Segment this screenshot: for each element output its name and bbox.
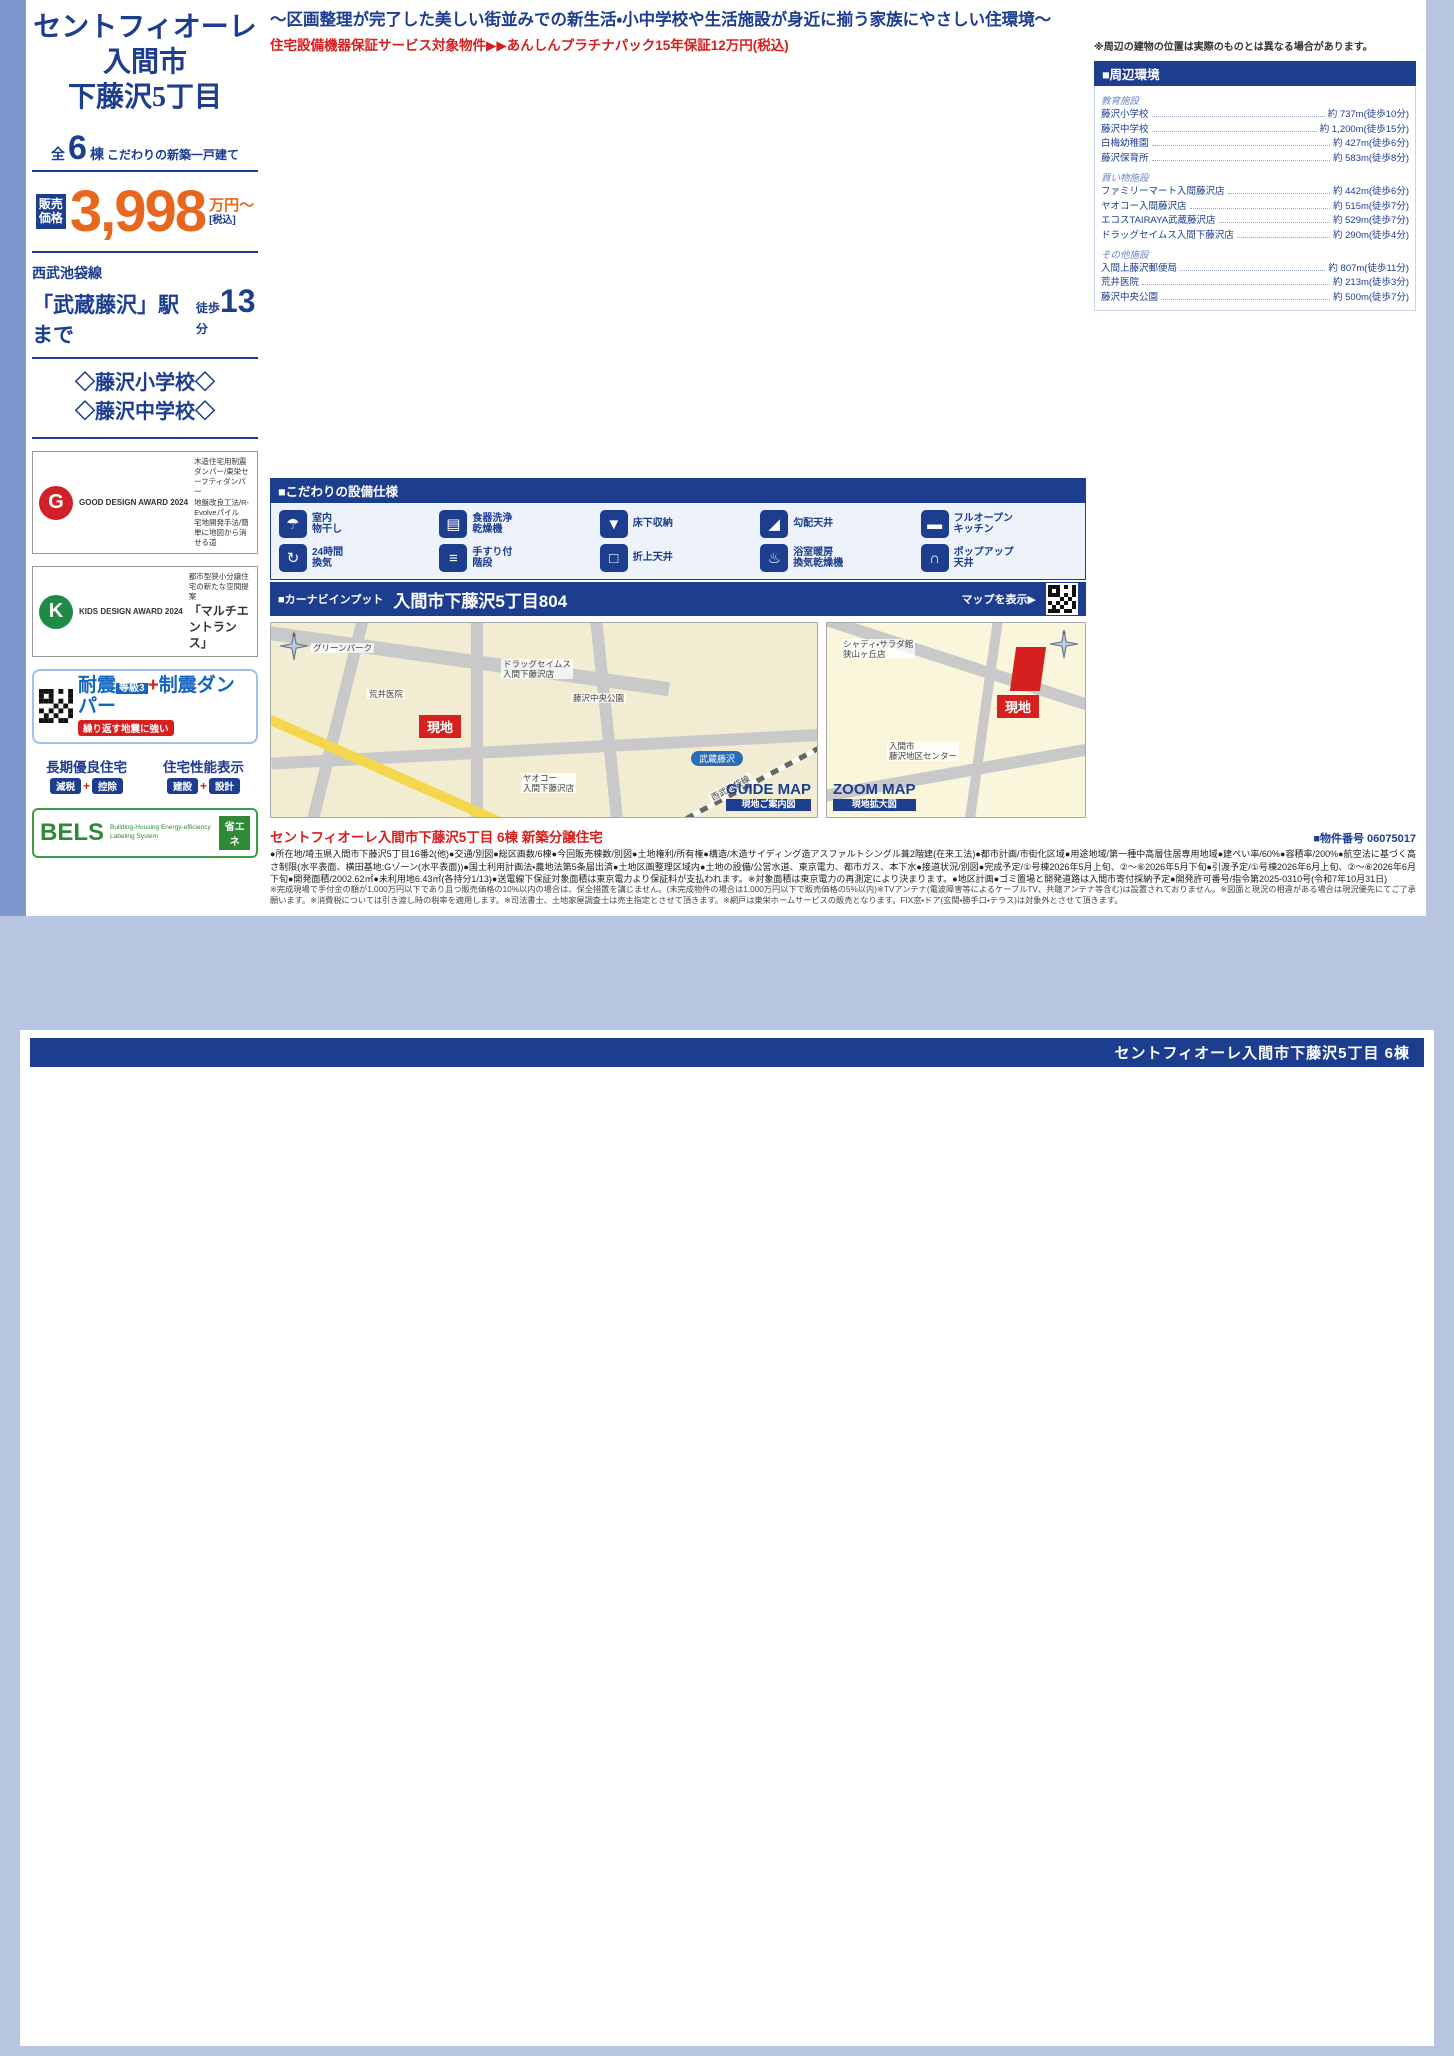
price-label: 販売価格: [36, 194, 66, 230]
equipment-item: □折上天井: [600, 544, 756, 572]
page-1: セントフィオーレ 入間市 下藤沢5丁目 全6 棟 こだわりの新築一戸建て 販売価…: [26, 0, 1426, 916]
equipment-item: ▼床下収納: [600, 510, 756, 538]
outline-body: ●所在地/埼玉県入間市下藤沢5丁目16番2(他)●交通/別図●総区画数/6棟●今…: [270, 848, 1416, 886]
facility-distance: 約 807m(徒歩11分): [1328, 262, 1409, 277]
price-unit: 万円〜[税込]: [209, 197, 254, 227]
property-title: セントフィオーレ 入間市 下藤沢5丁目: [32, 10, 258, 115]
zoom-map-badge: ZOOM MAP現地拡大図: [833, 782, 916, 811]
facility-distance: 約 442m(徒歩6分): [1333, 185, 1409, 200]
facility-distance: 約 1,200m(徒歩15分): [1320, 123, 1409, 138]
property-outline: セントフィオーレ入間市下藤沢5丁目 6棟 新築分譲住宅 ■物件番号 060750…: [270, 826, 1416, 886]
surroundings-item: エコスTAIRAYA武蔵藤沢店約 529m(徒歩7分): [1101, 214, 1409, 229]
site-parcel-shape: [1010, 647, 1046, 691]
siteplan-note: ※周辺の建物の位置は実際のものとは異なる場合があります。: [1094, 38, 1416, 53]
sidebar: セントフィオーレ 入間市 下藤沢5丁目 全6 棟 こだわりの新築一戸建て 販売価…: [32, 10, 258, 858]
catchphrase: 〜区画整理が完了した美しい街並みでの新生活・小中学校や生活施設が身近に揃う家族に…: [270, 6, 1416, 30]
equipment-label: ポップアップ 天井: [954, 547, 1014, 570]
poi-label: ドラッグセイムス 入間下藤沢店: [501, 659, 573, 679]
zoom-map: シャディ・サラダ館 狭山ヶ丘店 入間市 藤沢地区センター 現地 ZOOM MAP…: [826, 622, 1086, 818]
equipment-item: ▬フルオープン キッチン: [921, 510, 1077, 538]
equipment-item: ◢勾配天井: [760, 510, 916, 538]
facility-name: 藤沢保育所: [1101, 152, 1149, 167]
facility-name: 藤沢小学校: [1101, 108, 1149, 123]
total-units: 全6 棟 こだわりの新築一戸建て: [32, 129, 258, 172]
surroundings-item: 藤沢小学校約 737m(徒歩10分): [1101, 108, 1409, 123]
site-marker: 現地: [419, 715, 461, 738]
dotted-leader: [1190, 208, 1330, 209]
bels-logo: BELS: [40, 821, 104, 845]
disclaimer: ※完成現場で手付金の額が1,000万円以下であり且つ販売価格の10%以内の場合は…: [270, 884, 1416, 906]
equipment-label: 24時間 換気: [312, 547, 343, 570]
dotted-leader: [1161, 299, 1330, 300]
compass-icon: N: [1049, 629, 1079, 659]
equipment-item: ▤食器洗浄 乾燥機: [439, 510, 595, 538]
station-access: 西武池袋線 「武蔵藤沢」駅まで 徒歩13分: [32, 263, 258, 359]
carnav-map-button: マップを表示▶: [962, 591, 1036, 607]
surroundings-section: ■周辺環境 教育施設藤沢小学校約 737m(徒歩10分)藤沢中学校約 1,200…: [1094, 61, 1416, 311]
maps-row: 武蔵藤沢 西武池袋線 現地 ドラッグセイムス 入間下藤沢店 荒井医院 藤沢中央公…: [270, 622, 1086, 818]
dotted-leader: [1219, 222, 1330, 223]
price-value: 3,998: [70, 178, 205, 245]
bels-badge: BELS Building-Housing Energy-efficiency …: [32, 808, 258, 858]
school-district: ◇藤沢小学校◇ ◇藤沢中学校◇: [32, 369, 258, 439]
equipment-item: ↻24時間 換気: [279, 544, 435, 572]
surroundings-item: 藤沢中学校約 1,200m(徒歩15分): [1101, 123, 1409, 138]
page1-right-column: ※周辺の建物の位置は実際のものとは異なる場合があります。 ■周辺環境 教育施設藤…: [1094, 34, 1416, 311]
surroundings-group-label: 教育施設: [1101, 93, 1409, 107]
svg-text:N: N: [292, 632, 295, 637]
facility-distance: 約 500m(徒歩7分): [1333, 291, 1409, 306]
good-design-award-badge: G GOOD DESIGN AWARD 2024 木造住宅用制震ダンパー/東栄セ…: [32, 451, 258, 554]
surroundings-item: 入間上藤沢郵便局約 807m(徒歩11分): [1101, 262, 1409, 277]
facility-distance: 約 213m(徒歩3分): [1333, 276, 1409, 291]
sloped-ceiling-icon: ◢: [760, 510, 788, 538]
surroundings-group-label: その他施設: [1101, 247, 1409, 261]
dotted-leader: [1228, 193, 1330, 194]
compass-icon: N: [279, 631, 309, 661]
station-label: 武蔵藤沢: [691, 751, 743, 766]
poi-label: 荒井医院: [367, 689, 405, 699]
coffered-ceiling-icon: □: [600, 544, 628, 572]
facility-distance: 約 583m(徒歩8分): [1333, 152, 1409, 167]
choki-yuryo-badge: 長期優良住宅 減税+控除: [32, 756, 141, 794]
property-number: ■物件番号 06075017: [1313, 830, 1416, 846]
poi-label: 入間市 藤沢地区センター: [887, 741, 959, 761]
poi-label: グリーンパーク: [311, 643, 374, 653]
poi-label: シャディ・サラダ館 狭山ヶ丘店: [841, 639, 915, 659]
equipment-label: 折上天井: [633, 552, 673, 564]
dotted-leader: [1180, 270, 1325, 271]
equipment-label: 手すり付 階段: [472, 547, 512, 570]
flyer-root: { "page1": { "catchphrase": "〜区画整理が完了した美…: [0, 0, 1454, 2056]
surroundings-title: ■周辺環境: [1094, 61, 1416, 86]
dotted-leader: [1152, 116, 1325, 117]
equipment-label: フルオープン キッチン: [954, 513, 1013, 536]
equipment-label: 室内 物干し: [312, 513, 342, 536]
surroundings-item: 藤沢中央公園約 500m(徒歩7分): [1101, 291, 1409, 306]
surroundings-item: ファミリーマート入間藤沢店約 442m(徒歩6分): [1101, 185, 1409, 200]
kids-design-icon: K: [39, 595, 73, 629]
dotted-leader: [1152, 145, 1330, 146]
facility-name: ヤオコー入間藤沢店: [1101, 200, 1187, 215]
surroundings-item: ヤオコー入間藤沢店約 515m(徒歩7分): [1101, 200, 1409, 215]
carnav-address: 入間市下藤沢5丁目804: [393, 587, 567, 612]
guide-map-badge: GUIDE MAP現地ご案内図: [726, 782, 811, 811]
bath-dryer-icon: ♨: [760, 544, 788, 572]
equipment-item: ≡手すり付 階段: [439, 544, 595, 572]
facility-name: 荒井医院: [1101, 276, 1139, 291]
facility-distance: 約 529m(徒歩7分): [1333, 214, 1409, 229]
facility-name: エコスTAIRAYA武蔵藤沢店: [1101, 214, 1216, 229]
site-marker: 現地: [997, 695, 1039, 718]
facility-name: ドラッグセイムス入間下藤沢店: [1101, 229, 1234, 244]
dishwasher-icon: ▤: [439, 510, 467, 538]
poi-label: 藤沢中央公園: [571, 693, 626, 703]
facility-distance: 約 515m(徒歩7分): [1333, 200, 1409, 215]
surroundings-item: ドラッグセイムス入間下藤沢店約 290m(徒歩4分): [1101, 229, 1409, 244]
qr-code: [1046, 583, 1078, 615]
guide-map: 武蔵藤沢 西武池袋線 現地 ドラッグセイムス 入間下藤沢店 荒井医院 藤沢中央公…: [270, 622, 818, 818]
equipment-item: ♨浴室暖房 換気乾燥機: [760, 544, 916, 572]
equipment-title: ■こだわりの設備仕様: [270, 478, 1086, 503]
facility-name: ファミリーマート入間藤沢店: [1101, 185, 1225, 200]
facility-name: 白梅幼稚園: [1101, 137, 1149, 152]
facility-name: 入間上藤沢郵便局: [1101, 262, 1177, 277]
seinou-hyoji-badge: 住宅性能表示 建設+設計: [149, 756, 258, 794]
dotted-leader: [1142, 284, 1330, 285]
surroundings-item: 藤沢保育所約 583m(徒歩8分): [1101, 152, 1409, 167]
facility-distance: 約 427m(徒歩6分): [1333, 137, 1409, 152]
dotted-leader: [1237, 237, 1330, 238]
underfloor-storage-icon: ▼: [600, 510, 628, 538]
left-accent-strip: [0, 0, 26, 916]
poi-label: ヤオコー 入間下藤沢店: [521, 773, 576, 793]
surroundings-list: 教育施設藤沢小学校約 737m(徒歩10分)藤沢中学校約 1,200m(徒歩15…: [1094, 86, 1416, 311]
equipment-item: ☂室内 物干し: [279, 510, 435, 538]
equipment-label: 食器洗浄 乾燥機: [472, 513, 512, 536]
popup-ceiling-icon: ∩: [921, 544, 949, 572]
equipment-item: ∩ポップアップ 天井: [921, 544, 1077, 572]
facility-name: 藤沢中央公園: [1101, 291, 1158, 306]
carnav-bar: ■カーナビインプット 入間市下藤沢5丁目804 マップを表示▶: [270, 582, 1086, 616]
handrail-stairs-icon: ≡: [439, 544, 467, 572]
qr-code: [39, 689, 73, 723]
page-2: セントフィオーレ入間市下藤沢5丁目 6棟: [20, 1030, 1434, 2046]
seismic-badge: 耐震等級3+制震ダンパー 繰り返す地震に強い: [32, 669, 258, 744]
equipment-label: 床下収納: [633, 518, 673, 530]
dotted-leader: [1152, 131, 1317, 132]
price-from: 販売価格 3,998 万円〜[税込]: [32, 178, 258, 253]
facility-distance: 約 737m(徒歩10分): [1328, 108, 1409, 123]
equipment-section: ■こだわりの設備仕様 ☂室内 物干し▤食器洗浄 乾燥機▼床下収納◢勾配天井▬フル…: [270, 478, 1086, 580]
ventilation-icon: ↻: [279, 544, 307, 572]
svg-text:N: N: [1062, 630, 1065, 635]
open-kitchen-icon: ▬: [921, 510, 949, 538]
equipment-grid: ☂室内 物干し▤食器洗浄 乾燥機▼床下収納◢勾配天井▬フルオープン キッチン↻2…: [270, 503, 1086, 580]
dotted-leader: [1152, 160, 1330, 161]
facility-distance: 約 290m(徒歩4分): [1333, 229, 1409, 244]
indoor-laundry-icon: ☂: [279, 510, 307, 538]
surroundings-item: 白梅幼稚園約 427m(徒歩6分): [1101, 137, 1409, 152]
equipment-label: 浴室暖房 換気乾燥機: [793, 547, 843, 570]
guarantee-note: 住宅設備機器保証サービス対象物件▶▶あんしんプラチナパック15年保証12万円(税…: [270, 34, 1100, 54]
surroundings-item: 荒井医院約 213m(徒歩3分): [1101, 276, 1409, 291]
carnav-label: ■カーナビインプット: [278, 591, 383, 607]
page2-header: セントフィオーレ入間市下藤沢5丁目 6棟: [30, 1038, 1424, 1067]
kids-design-award-badge: K KIDS DESIGN AWARD 2024 都市型狭小分譲住宅の新たな空間…: [32, 566, 258, 657]
outline-title: セントフィオーレ入間市下藤沢5丁目 6棟 新築分譲住宅: [270, 826, 603, 846]
facility-name: 藤沢中学校: [1101, 123, 1149, 138]
equipment-label: 勾配天井: [793, 518, 833, 530]
surroundings-group-label: 買い物施設: [1101, 170, 1409, 184]
good-design-icon: G: [39, 486, 73, 520]
